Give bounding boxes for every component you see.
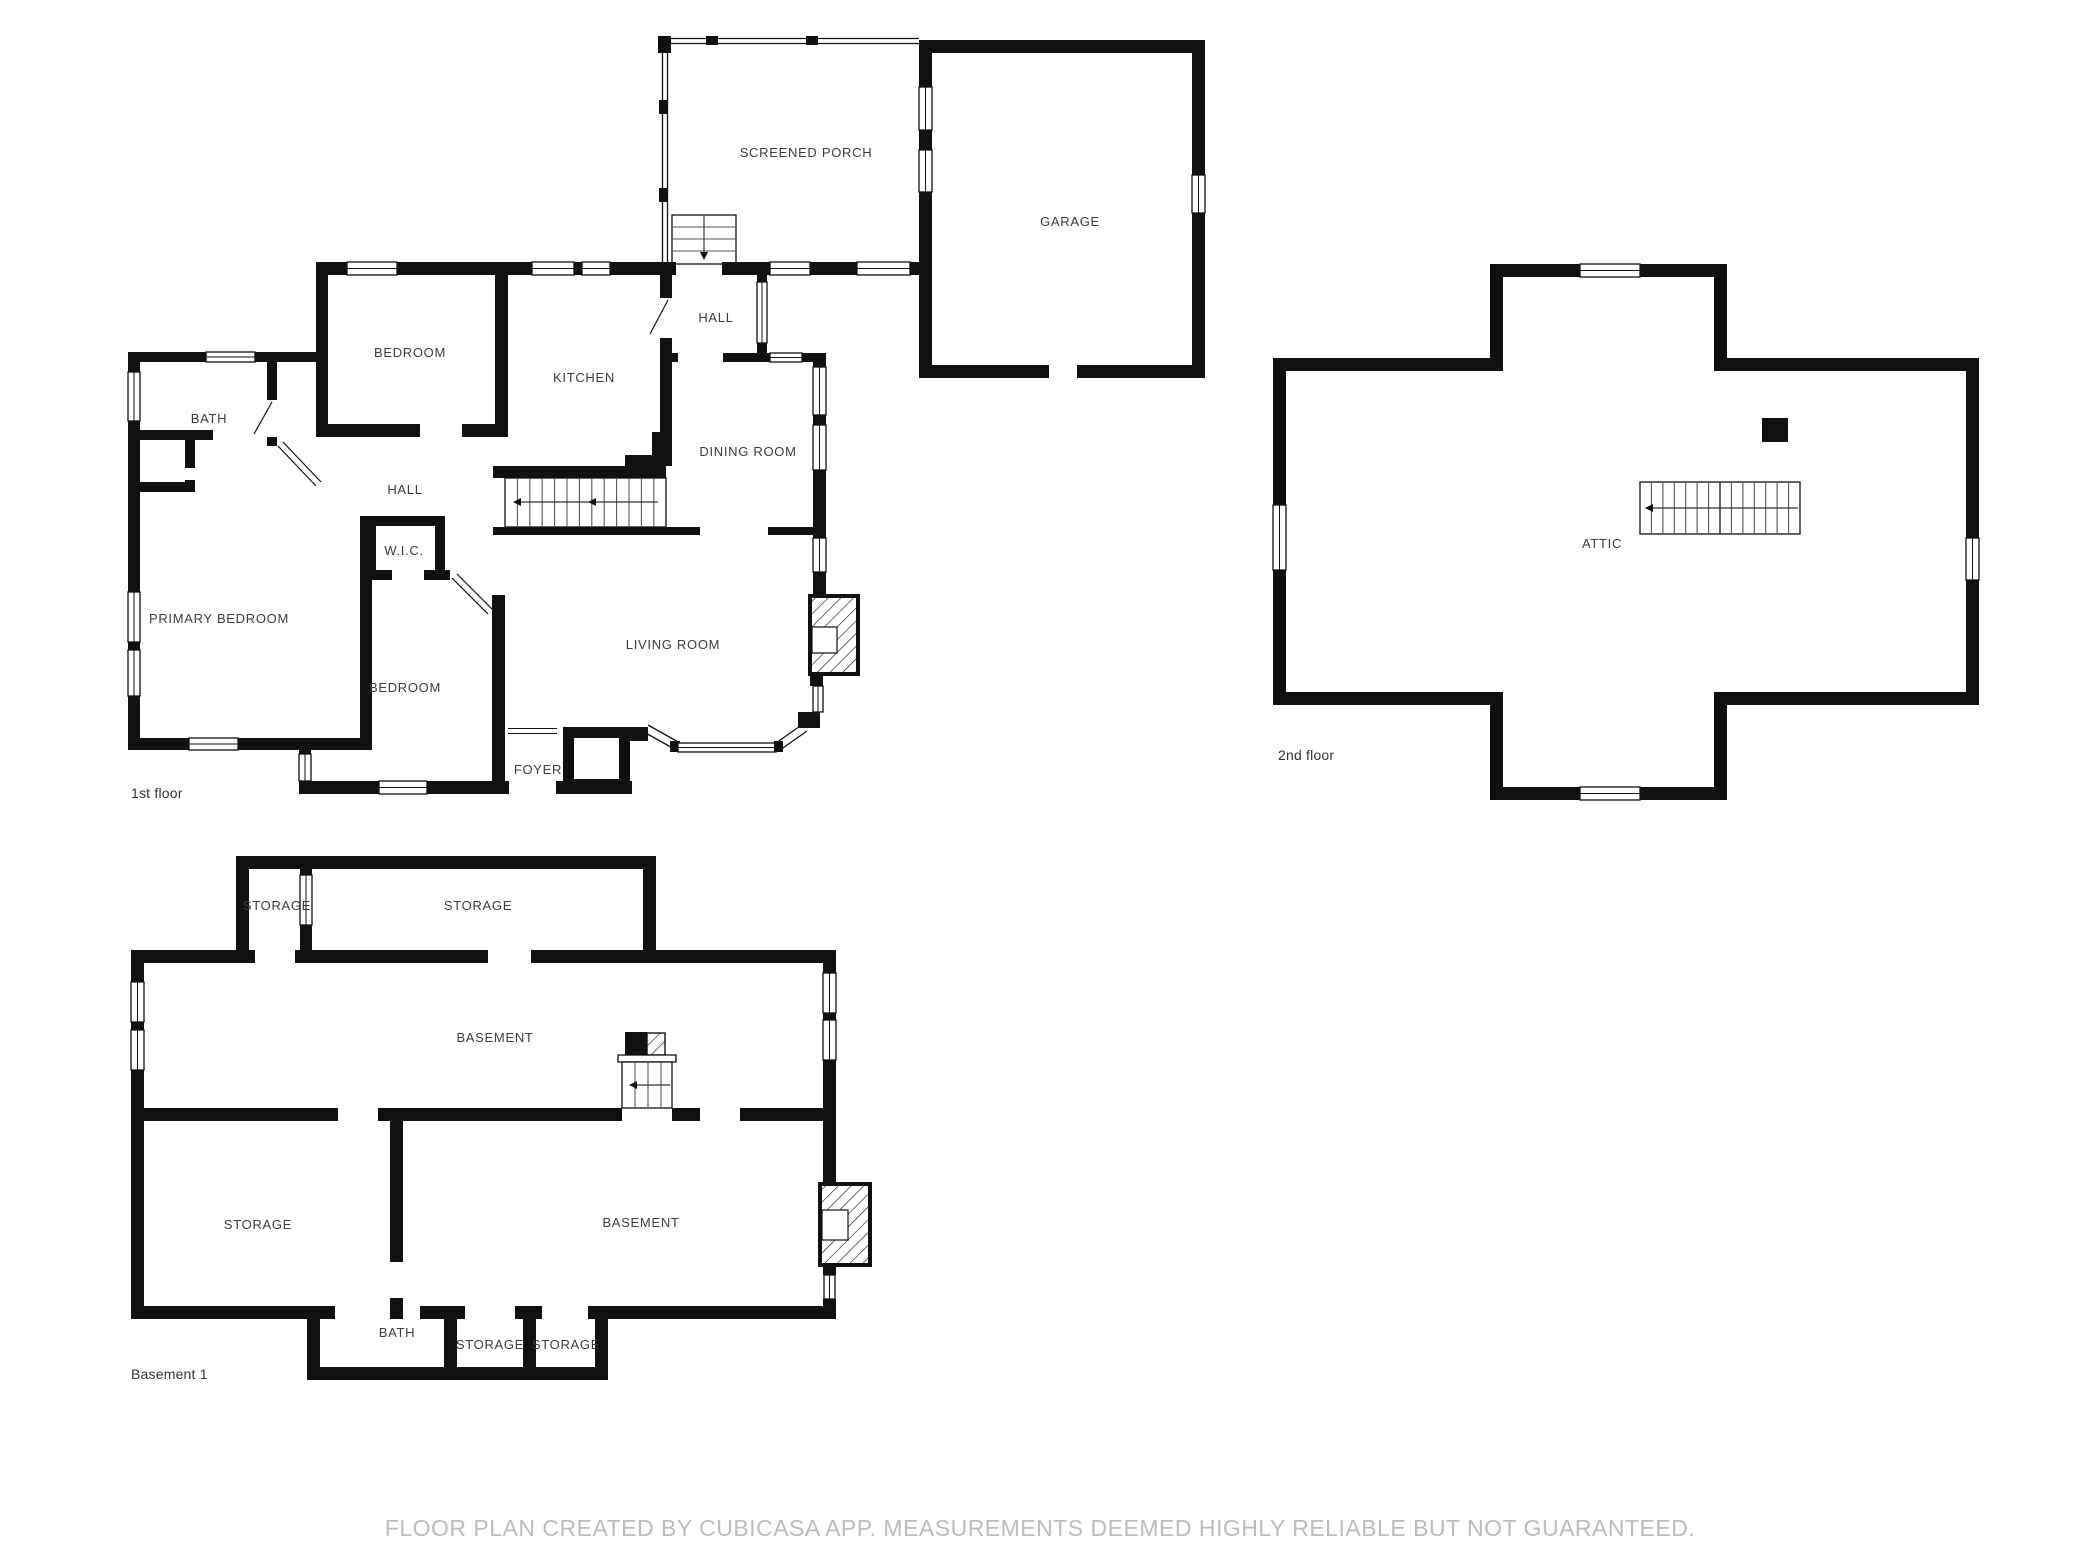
room-label-garage: GARAGE	[1040, 214, 1100, 229]
wic-walls	[366, 516, 493, 614]
room-label-wic: W.I.C.	[384, 543, 424, 558]
room-label-bath: BATH	[191, 411, 228, 426]
floorplan-basement: STORAGE STORAGE BASEMENT STORAGE BASEMEN…	[131, 856, 870, 1382]
room-label-basement-bath: BATH	[379, 1325, 416, 1340]
room-label-storage-large-top: STORAGE	[444, 898, 512, 913]
room-label-dining-room: DINING ROOM	[699, 444, 796, 459]
fireplace	[810, 596, 858, 674]
room-label-storage-bottom-right: STORAGE	[532, 1337, 600, 1352]
room-label-primary-bedroom: PRIMARY BEDROOM	[149, 611, 289, 626]
bay-window	[630, 724, 807, 752]
room-label-screened-porch: SCREENED PORCH	[740, 145, 873, 160]
attic-staircase	[1640, 482, 1800, 534]
room-label-foyer: FOYER	[514, 762, 562, 777]
caption-basement-1: Basement 1	[131, 1366, 208, 1382]
room-label-attic: ATTIC	[1582, 536, 1622, 551]
living-room-right-wall	[798, 538, 858, 728]
garage-walls	[919, 40, 1205, 378]
floor-plan-page: SCREENED PORCH GARAGE HALL BEDROOM KITCH…	[0, 0, 2080, 1560]
caption-2nd-floor: 2nd floor	[1278, 747, 1334, 763]
porch-staircase	[672, 215, 736, 264]
basement-staircase	[618, 1032, 676, 1108]
basement-chimney	[625, 1032, 647, 1055]
room-label-hall: HALL	[387, 482, 422, 497]
room-label-bedroom-bottom: BEDROOM	[369, 680, 441, 695]
floor-plan-drawing: SCREENED PORCH GARAGE HALL BEDROOM KITCH…	[0, 0, 2080, 1560]
room-label-living-room: LIVING ROOM	[626, 637, 720, 652]
bath-walls	[128, 352, 328, 492]
footer-disclaimer: FLOOR PLAN CREATED BY CUBICASA APP. MEAS…	[385, 1515, 1695, 1541]
room-label-basement-main: BASEMENT	[456, 1030, 533, 1045]
room-label-hall-upper: HALL	[698, 310, 733, 325]
foyer-walls	[492, 727, 632, 794]
room-label-bedroom-top: BEDROOM	[374, 345, 446, 360]
upper-hall-walls	[757, 275, 767, 353]
room-label-storage-bottom-left: STORAGE	[456, 1337, 524, 1352]
first-floor-left-wall	[128, 352, 140, 750]
first-floor-top-wall	[316, 262, 932, 275]
room-label-kitchen: KITCHEN	[553, 370, 615, 385]
caption-1st-floor: 1st floor	[131, 785, 183, 801]
floorplan-1st-floor: SCREENED PORCH GARAGE HALL BEDROOM KITCH…	[128, 36, 1205, 801]
room-label-storage-left: STORAGE	[224, 1217, 292, 1232]
basement-fireplace	[820, 1184, 870, 1265]
room-label-basement-lower: BASEMENT	[602, 1215, 679, 1230]
attic-walls	[1273, 264, 1979, 800]
chimney	[1762, 418, 1788, 442]
room-label-storage-small-top: STORAGE	[243, 898, 311, 913]
floorplan-2nd-floor: ATTIC 2nd floor	[1273, 264, 1979, 800]
